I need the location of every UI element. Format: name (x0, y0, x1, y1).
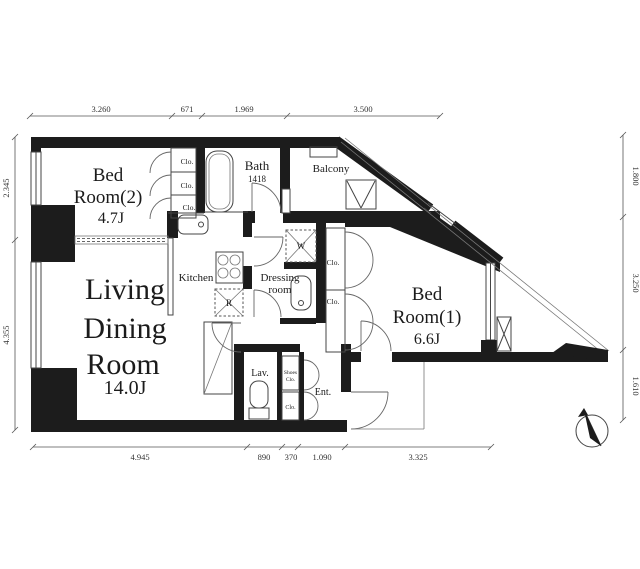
closet-door-arc (150, 152, 171, 173)
railing-line (341, 142, 605, 355)
closet-label: Clo. (183, 203, 196, 212)
wall-segment (284, 262, 318, 269)
dim-left-1: 2.345 (1, 178, 11, 197)
dim-top-3: 1.969 (234, 104, 253, 114)
bedroom2-label-line1: Bed (93, 165, 124, 186)
stove-burner (218, 255, 228, 265)
kitchen-label: Kitchen (179, 272, 214, 284)
room-kitchen: Kitchen R (178, 215, 243, 316)
bath-size-label: 1418 (248, 174, 267, 184)
dim-bottom-2: 890 (258, 452, 271, 462)
wall-segment (277, 352, 282, 428)
shoes-closet-label-line1: Shoes (284, 370, 297, 376)
bath-label: Bath (245, 158, 270, 173)
stove-burner (230, 255, 240, 265)
wall-segment (280, 318, 316, 324)
wall-segment (243, 223, 252, 237)
balcony-label: Balcony (313, 163, 350, 175)
dim-left-2: 4.355 (1, 325, 11, 344)
dim-right-3: 1.610 (631, 376, 640, 395)
room-entrance: Ent. (315, 362, 424, 429)
living-area: 14.0J (104, 377, 147, 399)
kitchen-faucet (199, 222, 204, 227)
wall-segment (316, 223, 326, 323)
dim-right-1: 1.800 (631, 166, 640, 185)
washer-letter: W (297, 241, 306, 251)
balcony-hatch-line (361, 181, 375, 208)
dimension-bottom: 4.945 890 370 1.090 3.325 (30, 444, 494, 462)
wall-diagonal (336, 141, 430, 209)
kitchen-partition (168, 238, 173, 315)
wall-segment (236, 344, 300, 352)
front-door-arc (351, 392, 388, 429)
dim-top-2: 671 (181, 104, 194, 114)
bathtub-inner (209, 154, 230, 209)
dim-right-2: 3.250 (631, 273, 640, 292)
dim-bottom-5: 3.325 (408, 452, 427, 462)
sliding-door-track (75, 236, 168, 244)
toilet-bowl (250, 381, 268, 408)
bedroom2-label-line2: Room(2) (74, 187, 143, 208)
wall-segment (196, 145, 205, 213)
wall-column (31, 368, 77, 420)
toilet-tank (249, 408, 269, 419)
wall-segment (243, 211, 255, 223)
balcony-hatch-box (346, 180, 376, 209)
washbasin-drain (299, 301, 304, 306)
dimension-left: 2.345 4.355 (1, 134, 18, 433)
stove-burner (218, 268, 228, 278)
closet-label: Clo. (181, 181, 194, 190)
bedroom1-label-line2: Room(1) (393, 307, 462, 328)
wall-segment (341, 344, 351, 392)
bedroom2-area: 4.7J (98, 210, 124, 227)
dressing-door-arc (254, 237, 283, 266)
wall-segment (345, 217, 395, 227)
bedroom1-area: 6.6J (414, 331, 440, 348)
dim-bottom-4: 1.090 (312, 452, 331, 462)
wall-segment (31, 137, 340, 148)
railing-line (345, 138, 609, 351)
wall-column (31, 205, 75, 262)
closet-label: Clo. (327, 297, 340, 306)
balcony-hatch-line (347, 181, 361, 208)
closet-door-arc (345, 260, 373, 288)
closet-door-arc (345, 232, 373, 260)
closet-door-arc (345, 294, 373, 322)
dimension-top: 3.260 671 1.969 3.500 (27, 104, 443, 119)
wall-segment (234, 344, 244, 432)
wall-segment (299, 352, 304, 428)
entrance-label: Ent. (315, 387, 331, 398)
dim-top-1: 3.260 (91, 104, 110, 114)
shoes-closet-label-line2: Clo. (286, 377, 296, 383)
lavatory-label: Lav. (251, 368, 268, 379)
wall-segment (243, 266, 252, 289)
floor-plan-page: 3.260 671 1.969 3.500 4.945 890 370 1.09… (0, 0, 640, 569)
floor-plan-drawing: 3.260 671 1.969 3.500 4.945 890 370 1.09… (0, 0, 640, 569)
refrigerator-letter: R (226, 298, 232, 308)
closet-label: Clo. (181, 157, 194, 166)
dim-bottom-3: 370 (285, 452, 298, 462)
bath-door-arc (252, 183, 281, 213)
hall-panel-diagonal (204, 322, 232, 394)
dim-bottom-1: 4.945 (130, 452, 149, 462)
closet-label: Clo. (285, 405, 296, 411)
room-lavatory: Lav. (249, 368, 269, 419)
living-label-line1: Living (85, 273, 165, 306)
wall-segment (167, 211, 178, 238)
living-label-line2: Dining (83, 312, 166, 345)
bedroom1-label-line1: Bed (412, 284, 443, 305)
closet-label: Clo. (327, 258, 340, 267)
stove-burner (230, 268, 240, 278)
room-dressing: Dressing room W (254, 230, 316, 317)
balcony-fixture (310, 147, 337, 157)
dimension-right: 1.800 3.250 1.610 (620, 132, 640, 423)
shoes-door-arc (304, 406, 318, 420)
dim-top-4: 3.500 (353, 104, 372, 114)
window-frame (282, 189, 290, 213)
dressing-label-line2: room (268, 284, 292, 296)
closet-door-arc (150, 175, 171, 196)
shoes-door-arc (304, 360, 319, 375)
bathtub (206, 151, 233, 212)
bedroom1-door-arc (361, 321, 391, 351)
compass-icon (576, 408, 608, 447)
